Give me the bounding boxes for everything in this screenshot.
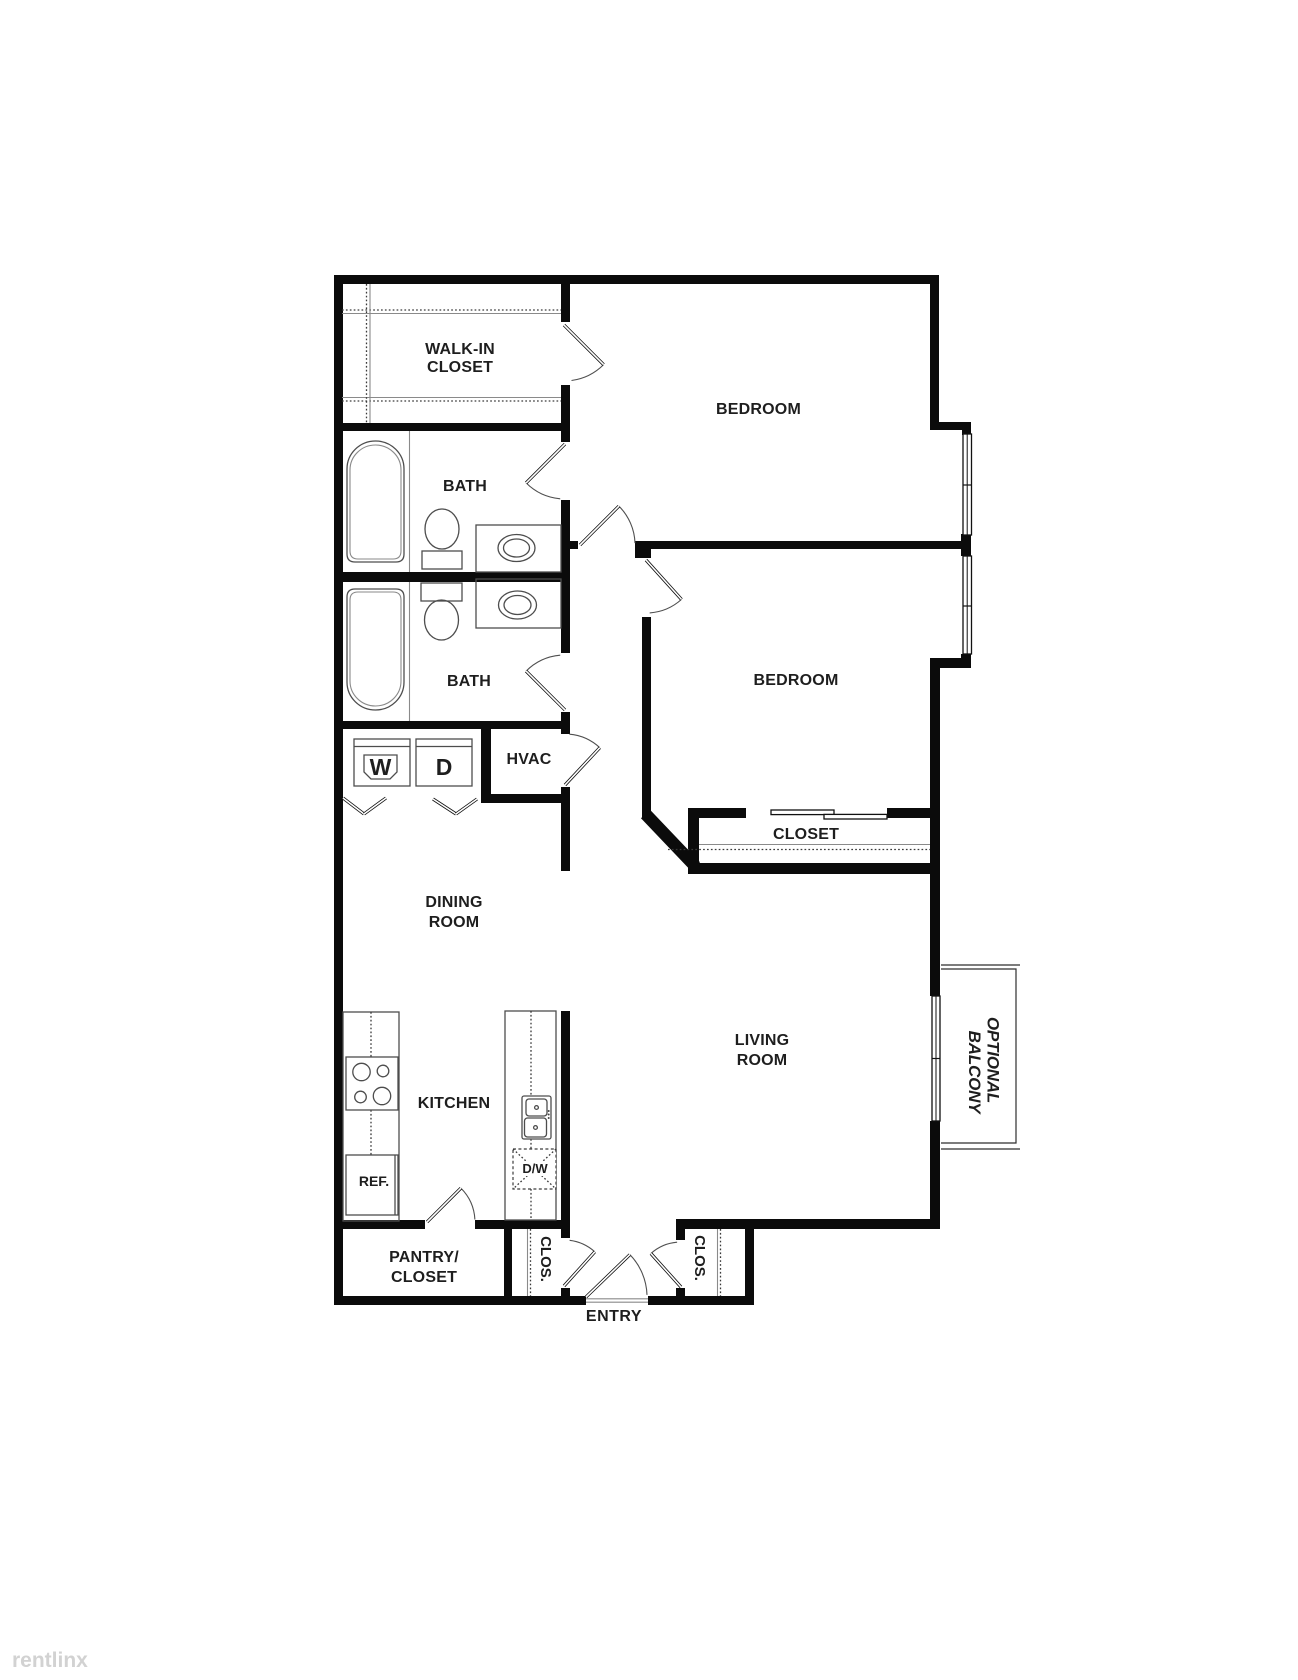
svg-text:CLOSET: CLOSET [391, 1269, 457, 1286]
svg-text:CLOS.: CLOS. [537, 1236, 554, 1282]
svg-text:ROOM: ROOM [737, 1052, 788, 1069]
svg-text:KITCHEN: KITCHEN [418, 1095, 491, 1112]
svg-text:ENTRY: ENTRY [586, 1308, 642, 1325]
svg-text:BEDROOM: BEDROOM [716, 401, 801, 418]
svg-text:BATH: BATH [443, 478, 487, 495]
svg-text:WALK-IN: WALK-IN [425, 341, 495, 358]
svg-text:rentlinx: rentlinx [12, 1649, 88, 1672]
svg-text:HVAC: HVAC [507, 751, 552, 768]
svg-text:DINING: DINING [425, 894, 482, 911]
svg-text:BALCONY: BALCONY [965, 1031, 984, 1116]
svg-text:CLOSET: CLOSET [427, 359, 493, 376]
svg-text:D/W: D/W [522, 1161, 548, 1176]
svg-text:BATH: BATH [447, 673, 491, 690]
svg-text:CLOSET: CLOSET [773, 826, 839, 843]
svg-text:PANTRY/: PANTRY/ [389, 1249, 459, 1266]
svg-text:CLOS.: CLOS. [691, 1235, 708, 1281]
svg-text:W: W [370, 754, 392, 780]
svg-text:D: D [436, 754, 453, 780]
svg-text:ROOM: ROOM [429, 914, 480, 931]
svg-text:BEDROOM: BEDROOM [754, 672, 839, 689]
svg-text:REF.: REF. [359, 1173, 389, 1189]
svg-text:LIVING: LIVING [735, 1032, 790, 1049]
svg-text:OPTIONAL: OPTIONAL [984, 1017, 1003, 1103]
